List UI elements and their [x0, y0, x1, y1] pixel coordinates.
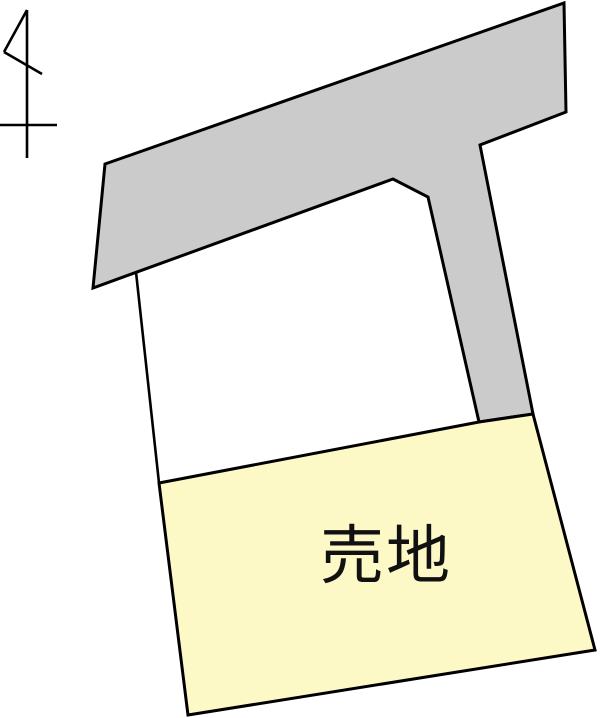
north-arrow-icon — [0, 10, 57, 158]
sale-parcel-label: 売地 — [320, 520, 452, 592]
plot-map: 売地 — [0, 0, 600, 718]
parcel-boundary-line — [136, 272, 159, 483]
plot-map-canvas: 売地 — [0, 0, 600, 718]
road-area — [93, 3, 566, 422]
